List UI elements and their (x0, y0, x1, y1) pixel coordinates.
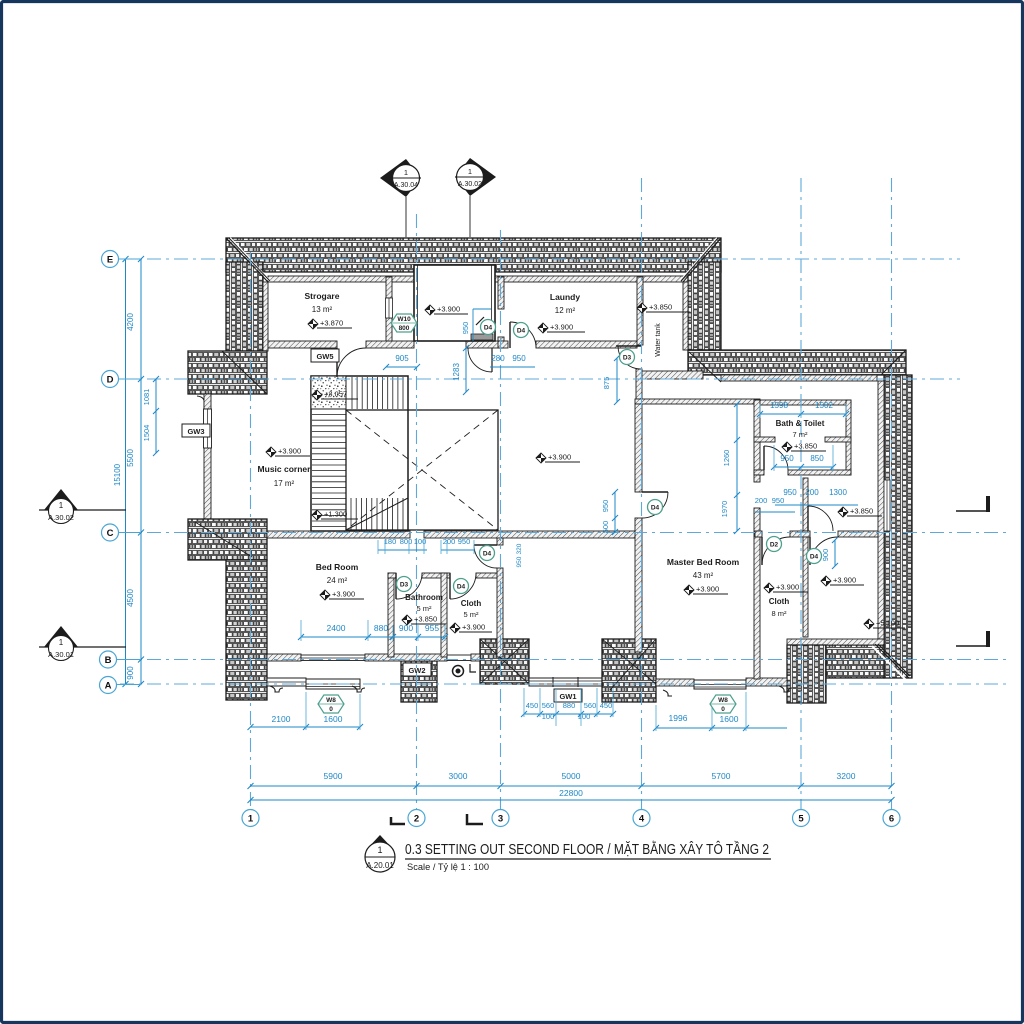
svg-text:+3.900: +3.900 (332, 590, 355, 599)
svg-text:+5.100: +5.100 (876, 619, 899, 628)
svg-text:+3.850: +3.850 (649, 303, 672, 312)
svg-text:Cloth: Cloth (461, 599, 482, 608)
svg-text:+3.900: +3.900 (550, 323, 573, 332)
svg-text:850: 850 (810, 454, 824, 463)
svg-text:1300: 1300 (829, 488, 847, 497)
svg-text:GW3: GW3 (187, 427, 204, 436)
svg-text:905: 905 (395, 354, 409, 363)
svg-text:43 m²: 43 m² (693, 571, 714, 580)
svg-text:0: 0 (721, 706, 725, 713)
svg-text:D3: D3 (400, 581, 409, 588)
svg-text:D4: D4 (810, 553, 819, 560)
svg-text:1: 1 (404, 168, 408, 177)
svg-text:1283: 1283 (452, 363, 461, 381)
svg-text:1970: 1970 (720, 501, 729, 518)
svg-text:955: 955 (425, 623, 439, 633)
svg-text:950: 950 (512, 354, 526, 363)
svg-text:2100: 2100 (272, 714, 291, 724)
svg-text:W8: W8 (326, 697, 336, 704)
svg-text:+3.900: +3.900 (278, 447, 301, 456)
svg-text:1: 1 (59, 638, 64, 647)
svg-text:Strogare: Strogare (305, 291, 340, 301)
svg-text:875: 875 (602, 377, 611, 390)
svg-text:Scale / Tỷ lệ 1 : 100: Scale / Tỷ lệ 1 : 100 (407, 862, 489, 872)
svg-text:13 m²: 13 m² (312, 305, 333, 314)
svg-text:D4: D4 (483, 550, 492, 557)
svg-text:3200: 3200 (837, 771, 856, 781)
svg-text:1: 1 (377, 845, 382, 855)
svg-text:+3.900: +3.900 (696, 585, 719, 594)
svg-text:D3: D3 (623, 354, 632, 361)
svg-text:D4: D4 (651, 504, 660, 511)
svg-text:17 m²: 17 m² (274, 479, 295, 488)
svg-text:D: D (107, 374, 114, 385)
svg-text:5000: 5000 (562, 771, 581, 781)
svg-text:1260: 1260 (722, 450, 731, 467)
svg-text:Bed Room: Bed Room (316, 562, 359, 572)
svg-text:200: 200 (443, 537, 456, 546)
svg-text:100: 100 (542, 712, 555, 721)
svg-text:GW1: GW1 (559, 692, 576, 701)
svg-text:22800: 22800 (559, 788, 583, 798)
svg-text:A.20.01: A.20.01 (366, 861, 394, 870)
svg-text:900: 900 (821, 549, 830, 562)
svg-text:560: 560 (542, 701, 555, 710)
svg-text:A.30.01: A.30.01 (48, 650, 74, 659)
svg-text:7 m²: 7 m² (793, 430, 809, 439)
svg-text:+3.900: +3.900 (437, 305, 460, 314)
svg-text:5 m²: 5 m² (417, 604, 433, 613)
svg-text:D4: D4 (517, 327, 526, 334)
svg-text:900: 900 (126, 666, 135, 680)
svg-text:5500: 5500 (126, 449, 135, 467)
svg-text:450: 450 (600, 701, 613, 710)
svg-text:180: 180 (384, 537, 397, 546)
svg-text:950: 950 (461, 322, 470, 335)
svg-text:3000: 3000 (449, 771, 468, 781)
svg-text:+3.870: +3.870 (320, 319, 343, 328)
svg-text:280: 280 (491, 354, 505, 363)
svg-text:D4: D4 (457, 583, 466, 590)
svg-text:1504: 1504 (142, 425, 151, 442)
svg-text:320: 320 (516, 543, 523, 554)
svg-text:3: 3 (498, 813, 503, 824)
svg-text:+3.900: +3.900 (833, 576, 856, 585)
svg-text:+3.850: +3.850 (414, 615, 437, 624)
svg-text:1598: 1598 (770, 401, 788, 410)
svg-text:+3.850: +3.850 (794, 442, 817, 451)
svg-text:+3.900: +3.900 (462, 623, 485, 632)
svg-text:A.30.04: A.30.04 (394, 182, 418, 189)
svg-text:D4: D4 (484, 324, 493, 331)
svg-text:Bathroom: Bathroom (405, 593, 443, 602)
svg-text:Bath & Toilet: Bath & Toilet (776, 419, 825, 428)
svg-text:A.30.02: A.30.02 (48, 513, 74, 522)
svg-text:2: 2 (414, 813, 419, 824)
svg-text:200: 200 (755, 496, 768, 505)
svg-text:1: 1 (59, 501, 64, 510)
svg-text:200: 200 (805, 488, 819, 497)
svg-text:+3.900: +3.900 (548, 453, 571, 462)
svg-text:Cloth: Cloth (769, 597, 790, 606)
svg-text:1996: 1996 (669, 713, 688, 723)
svg-text:950: 950 (458, 537, 471, 546)
svg-text:+1.300: +1.300 (324, 510, 347, 519)
svg-text:+3.900: +3.900 (776, 583, 799, 592)
svg-text:+3.850: +3.850 (850, 507, 873, 516)
svg-text:500: 500 (601, 521, 610, 534)
svg-text:4200: 4200 (126, 313, 135, 331)
svg-text:B: B (105, 655, 112, 666)
svg-text:15100: 15100 (113, 463, 122, 486)
svg-text:5: 5 (798, 813, 804, 824)
svg-text:560: 560 (584, 701, 597, 710)
svg-text:1: 1 (468, 167, 472, 176)
svg-text:5700: 5700 (712, 771, 731, 781)
svg-text:100: 100 (578, 712, 591, 721)
svg-text:24 m²: 24 m² (327, 576, 348, 585)
svg-text:Laundy: Laundy (550, 292, 580, 302)
svg-text:8 m²: 8 m² (772, 609, 788, 618)
svg-text:E: E (107, 254, 113, 265)
svg-text:950: 950 (601, 500, 610, 513)
svg-text:950: 950 (772, 496, 785, 505)
svg-text:1502: 1502 (815, 401, 833, 410)
svg-text:450: 450 (526, 701, 539, 710)
svg-text:0: 0 (329, 706, 333, 713)
svg-text:1600: 1600 (324, 714, 343, 724)
svg-text:12 m²: 12 m² (555, 306, 576, 315)
svg-text:4500: 4500 (126, 589, 135, 607)
svg-text:950: 950 (780, 454, 794, 463)
svg-text:GW5: GW5 (316, 352, 333, 361)
svg-text:W8: W8 (718, 697, 728, 704)
svg-text:880: 880 (563, 701, 576, 710)
svg-text:800: 800 (399, 325, 410, 332)
svg-text:5900: 5900 (324, 771, 343, 781)
svg-text:950: 950 (783, 488, 797, 497)
svg-text:950: 950 (516, 556, 523, 567)
svg-text:880: 880 (374, 623, 388, 633)
svg-text:1: 1 (248, 813, 254, 824)
svg-text:0.3 SETTING OUT SECOND FLOOR /: 0.3 SETTING OUT SECOND FLOOR / MẶT BẰNG … (405, 840, 769, 858)
svg-text:Music corner: Music corner (258, 464, 312, 474)
svg-text:Water tank: Water tank (655, 323, 662, 357)
svg-text:+3.057: +3.057 (324, 390, 347, 399)
svg-text:2400: 2400 (327, 623, 346, 633)
svg-text:D2: D2 (770, 541, 779, 548)
svg-text:A.30.02: A.30.02 (458, 181, 482, 188)
svg-text:A: A (105, 680, 112, 691)
svg-text:C: C (107, 528, 114, 539)
svg-text:5 m²: 5 m² (464, 610, 480, 619)
svg-text:800: 800 (400, 537, 413, 546)
svg-text:W10: W10 (397, 316, 411, 323)
svg-text:6: 6 (889, 813, 894, 824)
svg-text:Master Bed Room: Master Bed Room (667, 557, 740, 567)
svg-text:1081: 1081 (142, 389, 151, 406)
svg-text:4: 4 (639, 813, 645, 824)
svg-text:1600: 1600 (720, 714, 739, 724)
